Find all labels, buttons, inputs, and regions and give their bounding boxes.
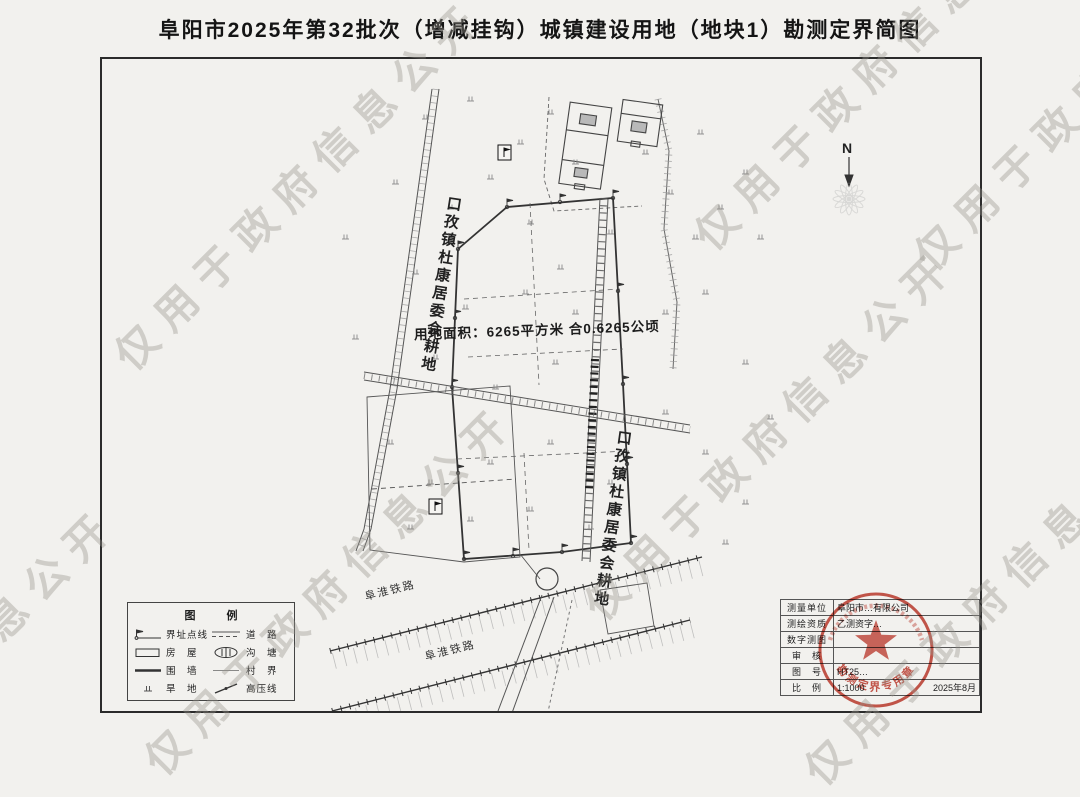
buildings bbox=[558, 92, 662, 199]
north-indicator: N bbox=[833, 140, 865, 215]
dryland-icon bbox=[133, 681, 166, 695]
legend-label: 高压线 bbox=[246, 681, 289, 695]
legend-row: 界址点线 道 路 bbox=[128, 625, 294, 643]
compass-rose-icon bbox=[833, 183, 865, 215]
legend-title: 图 例 bbox=[128, 603, 294, 625]
legend-label: 房 屋 bbox=[166, 645, 211, 659]
legend-label: 围 墙 bbox=[166, 663, 211, 677]
legend-label: 旱 地 bbox=[166, 681, 211, 695]
legend-row: 围 墙 村 界 bbox=[128, 661, 294, 679]
power-line-icon bbox=[211, 681, 246, 695]
wall-icon bbox=[133, 663, 166, 677]
house-icon bbox=[133, 645, 166, 659]
north-arrow-icon bbox=[845, 157, 853, 186]
tree-line bbox=[658, 99, 677, 369]
page-title: 阜阳市2025年第32批次（增减挂钩）城镇建设用地（地块1）勘测定界简图 bbox=[0, 14, 1080, 44]
legend-row: 房 屋 沟 塘 bbox=[128, 643, 294, 661]
stamp-star-icon bbox=[855, 620, 897, 660]
village-boundary-icon bbox=[211, 663, 246, 677]
legend-label: 界址点线 bbox=[166, 627, 211, 641]
pond-icon bbox=[211, 645, 246, 659]
official-stamp: 勘测定界专用章 bbox=[798, 578, 958, 728]
legend-row: 旱 地 高压线 bbox=[128, 679, 294, 697]
north-label: N bbox=[842, 140, 852, 156]
railway-lower bbox=[332, 620, 694, 711]
legend-label: 道 路 bbox=[246, 627, 289, 641]
railway-upper bbox=[330, 557, 706, 661]
svg-text:勘测定界专用章: 勘测定界专用章 bbox=[834, 662, 918, 694]
legend-label: 村 界 bbox=[246, 663, 289, 677]
road-icon bbox=[211, 627, 246, 641]
boundary-point-line-icon bbox=[133, 627, 166, 641]
road-bottom bbox=[498, 595, 572, 711]
legend-box: 图 例 界址点线 道 路 房 屋 沟 塘 围 墙 bbox=[127, 602, 295, 701]
ditch-horizontal bbox=[364, 372, 690, 433]
stamp-text: 勘测定界专用章 bbox=[834, 662, 918, 694]
legend-label: 沟 塘 bbox=[246, 645, 289, 659]
pond bbox=[536, 568, 558, 590]
